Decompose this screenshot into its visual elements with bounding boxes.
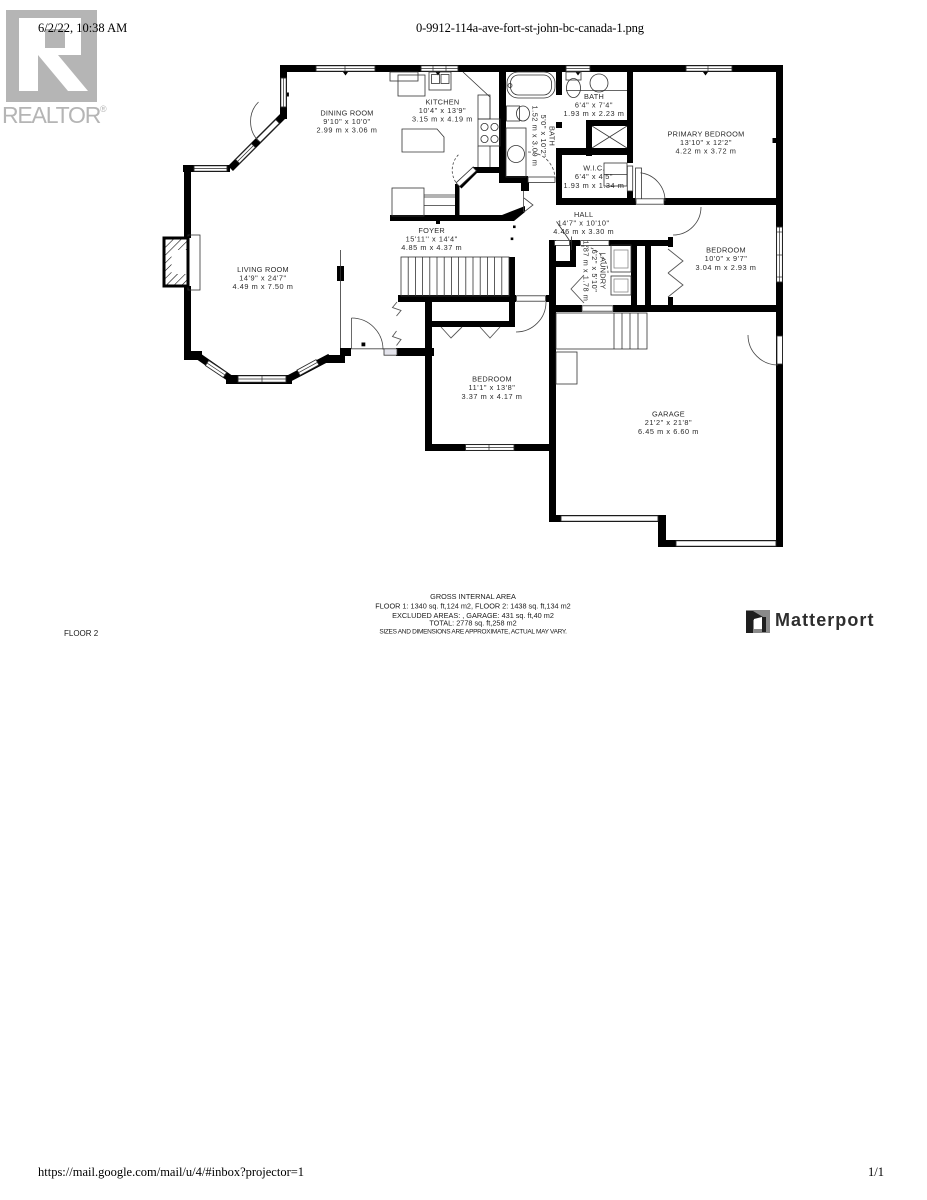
svg-text:6.45 m x 6.60 m: 6.45 m x 6.60 m bbox=[638, 427, 699, 436]
svg-text:TOTAL: 2778 sq. ft,258 m2: TOTAL: 2778 sq. ft,258 m2 bbox=[429, 619, 516, 628]
svg-text:FLOOR 2: FLOOR 2 bbox=[64, 629, 99, 638]
svg-text:REALTOR: REALTOR bbox=[2, 102, 101, 128]
svg-text:®: ® bbox=[100, 104, 107, 114]
svg-text:4.85 m x 4.37 m: 4.85 m x 4.37 m bbox=[401, 243, 462, 252]
svg-text:4.46 m x 3.30 m: 4.46 m x 3.30 m bbox=[553, 227, 614, 236]
svg-text:1.93 m x 1.34 m: 1.93 m x 1.34 m bbox=[564, 181, 625, 190]
svg-text:4.49 m x 7.50 m: 4.49 m x 7.50 m bbox=[233, 282, 294, 291]
svg-text:3.15 m x 4.19 m: 3.15 m x 4.19 m bbox=[412, 115, 473, 124]
svg-text:SIZES AND DIMENSIONS ARE APPRO: SIZES AND DIMENSIONS ARE APPROXIMATE, AC… bbox=[379, 629, 567, 636]
svg-text:3.04 m x 2.93 m: 3.04 m x 2.93 m bbox=[696, 263, 757, 272]
svg-text:1.52 m x 3.09 m: 1.52 m x 3.09 m bbox=[530, 106, 539, 167]
svg-text:FLOOR 1: 1340 sq. ft,124 m2, F: FLOOR 1: 1340 sq. ft,124 m2, FLOOR 2: 14… bbox=[375, 602, 571, 611]
svg-text:3.37 m x 4.17 m: 3.37 m x 4.17 m bbox=[462, 392, 523, 401]
svg-text:4.22 m x 3.72 m: 4.22 m x 3.72 m bbox=[676, 147, 737, 156]
svg-text:Matterport: Matterport bbox=[775, 610, 875, 630]
svg-text:1.93 m x 2.23 m: 1.93 m x 2.23 m bbox=[564, 109, 625, 118]
svg-text:2.99 m x 3.06 m: 2.99 m x 3.06 m bbox=[317, 126, 378, 135]
svg-text:GROSS INTERNAL AREA: GROSS INTERNAL AREA bbox=[430, 592, 516, 601]
svg-text:1.87 m x 1.78 m: 1.87 m x 1.78 m bbox=[581, 241, 590, 302]
